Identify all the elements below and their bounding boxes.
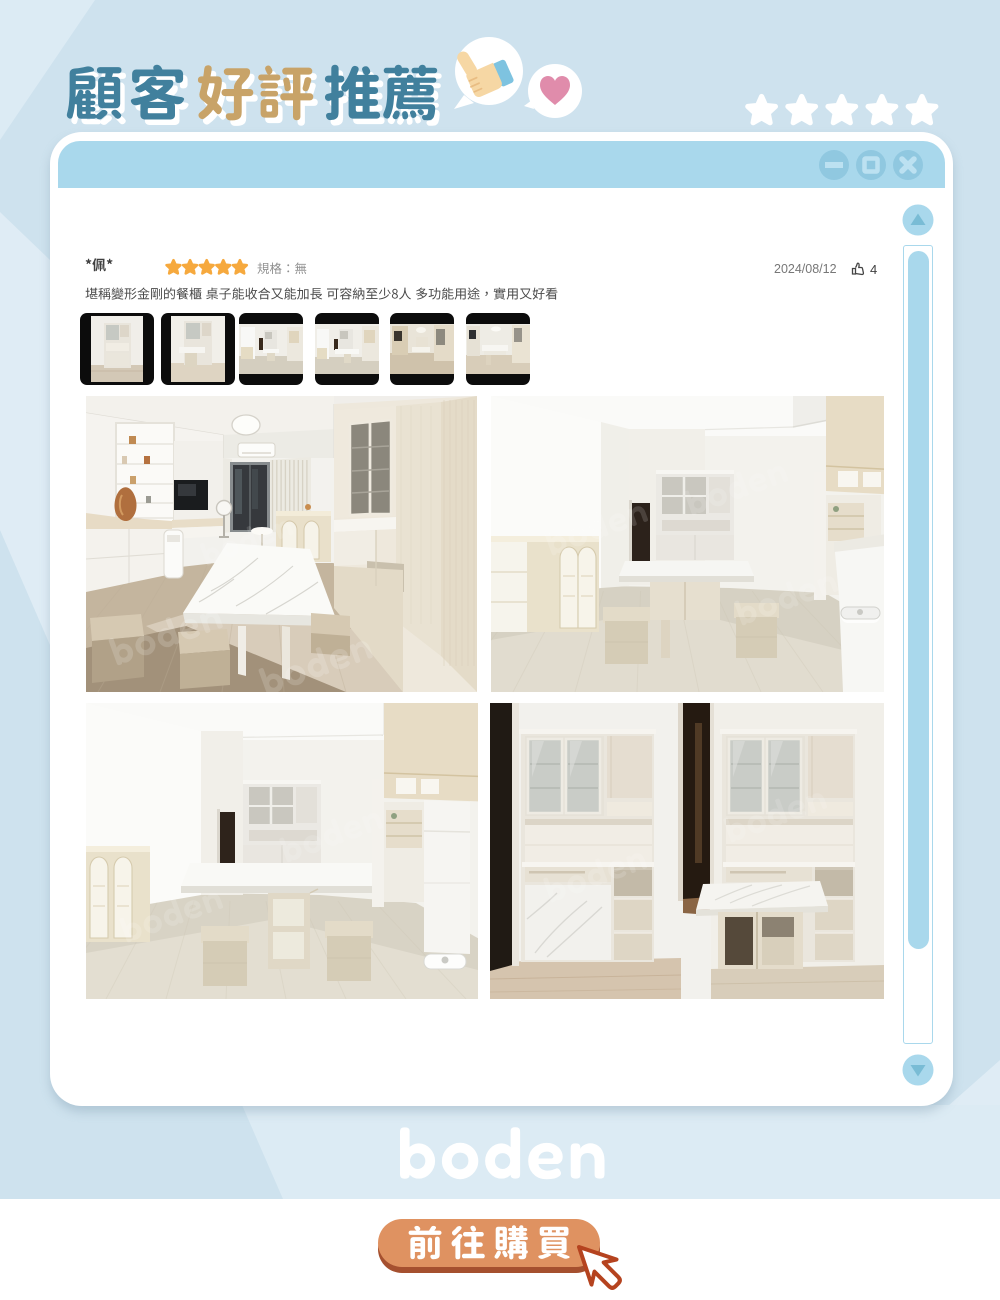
- svg-text:4: 4: [870, 262, 877, 277]
